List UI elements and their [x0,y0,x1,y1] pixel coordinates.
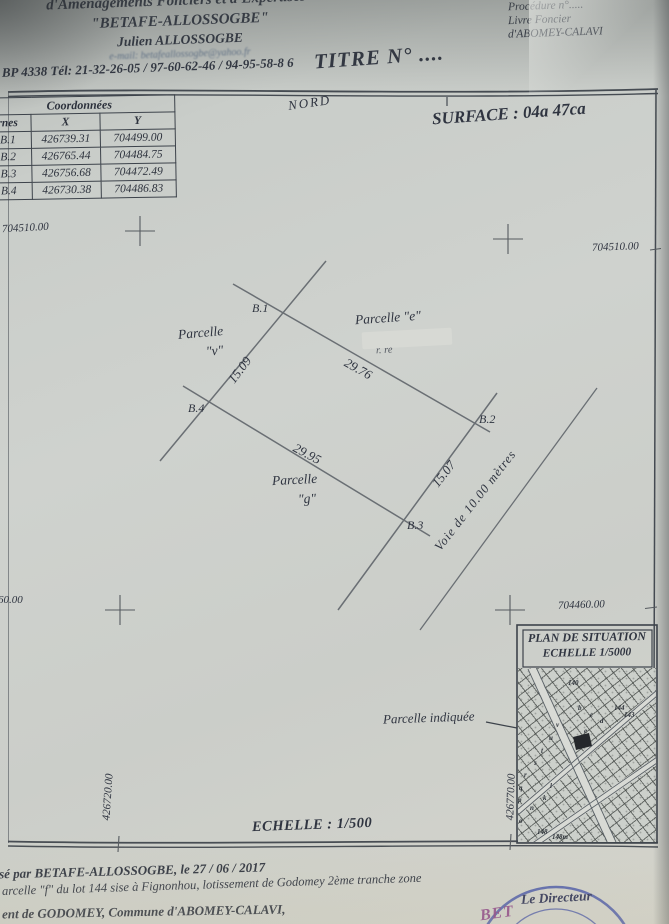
borne-y: 704486.83 [101,180,176,198]
borne-x: 426739.31 [31,130,100,148]
borne-y: 704484.75 [100,146,175,164]
borne-id: B.1 [0,131,32,149]
minimap-streets [518,668,656,842]
grid-y-bottom-right: 704460.00 [558,598,605,612]
borne-id: B.4 [0,182,32,200]
map-lot-number: 140 [568,680,579,687]
map-letter: o [519,818,523,825]
coordinates-table: Coordonnées rnes X Y B.1 426739.31 70449… [0,94,177,200]
indicated-parcel [573,733,592,750]
grid-y-bottom-left: 60.00 [0,594,23,606]
map-letter: c [590,712,593,719]
pointer-line [486,722,517,728]
parcelle-g-letter: "g" [298,492,317,508]
map-letter: u [549,735,553,742]
footer-commune: ent de GODOMEY, Commune d'ABOMEY-CALAVI, [2,903,286,922]
borne-b2-label: B.2 [479,413,495,426]
col-header-x: X [31,113,100,131]
map-letter: b [578,705,582,712]
table-row: B.4 426730.38 704486.83 [0,180,176,200]
grid-x-left: 426720.00 [98,747,117,848]
stamp-center-text: BET [479,903,515,924]
borne-b4-label: B.4 [188,402,204,415]
road-label: Voie de 10.00 mètres [415,426,537,576]
parcelle-g-label: Parcelle [272,472,318,489]
borne-id: B.2 [0,148,32,166]
map-letter: s [534,760,537,767]
situation-title: PLAN DE SITUATION [520,630,654,646]
borne-x: 426730.38 [32,181,101,199]
measure-bottom: 29.95 [277,434,337,475]
map-letter: q [519,785,523,792]
situation-scale: ECHELLE 1/5000 [520,646,654,661]
erased-text: r. re [376,345,393,357]
map-lot-number: 148m [552,834,568,841]
parcelle-e-label: Parcelle "e" [355,309,422,328]
surface-label: SURFACE : 04a 47ca [432,100,587,129]
grid-x-right: 426770.00 [503,747,519,847]
situation-minimap: b c d e v u t s r q p o n k l 140 144 14… [518,668,656,842]
parcelle-v-letter: "v" [205,343,224,359]
col-header-y: Y [100,112,175,130]
pointer-label: Parcelle indiquée [383,709,475,726]
map-lot-number: 143 [624,712,635,719]
north-label: NORD [287,93,332,113]
livre-foncier: Livre Foncier [508,13,572,28]
grid-y-top-left: 704510.00 [2,221,49,236]
director-label: Le Directeur [521,889,593,908]
grid-y-top-right: 704510.00 [592,240,639,254]
map-letter: e [584,728,587,735]
commune-label: d'ABOMEY-CALAVI [508,25,603,41]
main-scale-label: ECHELLE : 1/500 [252,816,373,836]
borne-id: B.3 [0,165,32,183]
map-letter: l [550,783,552,790]
borne-y: 704472.49 [101,163,176,181]
map-letter: v [556,722,559,729]
col-header-bornes: rnes [0,114,31,132]
map-letter: n [530,805,534,812]
map-letter: t [541,748,543,755]
measure-right: 15.07 [420,446,468,502]
parcelle-v-label: Parcelle [177,324,223,343]
borne-b3-label: B.3 [407,519,423,532]
map-letter: p [518,797,522,804]
borne-x: 426756.68 [32,164,101,182]
map-letter: d [600,718,604,725]
map-letter: k [543,795,547,802]
map-letter: r [524,772,527,779]
road-right-edge [420,388,597,630]
map-lot-number: 148 [537,829,548,836]
borne-b1-label: B.1 [252,302,268,315]
map-lot-number: 144 [614,705,625,712]
scanned-survey-document: s Topographiques d'Aménage d'Aménagement… [0,0,669,924]
borne-y: 704499.00 [100,129,175,147]
title-number: TITRE N° .... [313,41,444,73]
borne-x: 426765.44 [32,147,101,165]
procedure-number: Procédure n°..... [508,0,584,14]
firm-contact: 3 BP 4338 Tél: 21-32-26-05 / 97-60-62-46… [0,56,294,81]
edge-b1-b2 [233,284,490,432]
